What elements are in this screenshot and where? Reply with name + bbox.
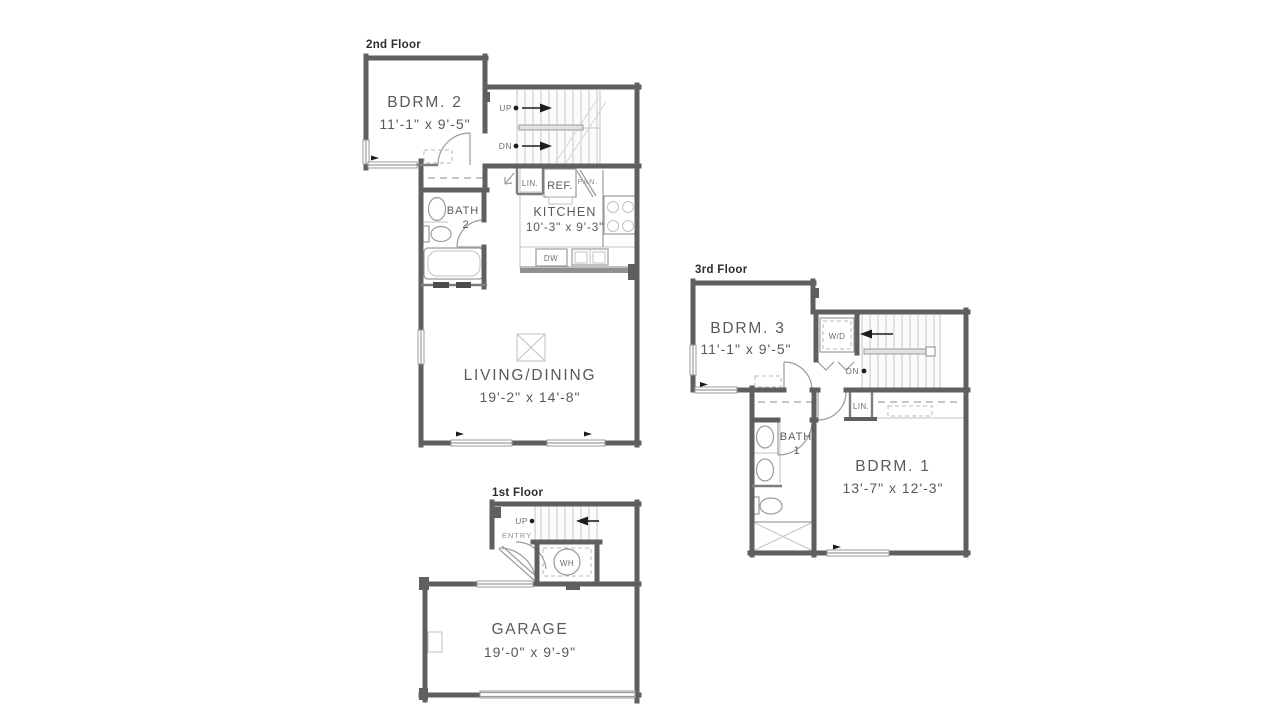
- pantry-label: PAN.: [578, 177, 599, 186]
- bath1-sink: [757, 459, 774, 481]
- room-bath1-number: 1: [793, 445, 800, 457]
- linen-label: LIN.: [522, 179, 538, 188]
- wall-pier: [419, 688, 428, 700]
- room-kitchen-label: KITCHEN: [533, 205, 596, 219]
- room-garage-label: GARAGE: [491, 621, 568, 638]
- stair-handrail: [519, 125, 583, 130]
- stair-handrail: [864, 349, 928, 354]
- window-tick: [456, 432, 464, 437]
- room-bath2-number: 2: [462, 219, 469, 231]
- bath2-door: [457, 220, 484, 247]
- wall-pier: [494, 507, 501, 518]
- kitchen-half-wall: [520, 268, 639, 273]
- dn-dot: [862, 369, 867, 374]
- floor-label-1st: 1st Floor: [492, 487, 543, 499]
- dresser-dashed: [755, 376, 781, 387]
- windows: [477, 581, 635, 698]
- window-tick: [833, 545, 841, 550]
- room-kitchen-dims: 10'-3" x 9'-3": [526, 220, 604, 234]
- refrigerator-handle: [549, 197, 572, 204]
- window-tick: [584, 432, 592, 437]
- dw-label: DW: [544, 254, 558, 263]
- entry-diagonal-wall: [499, 546, 538, 581]
- room-bdrm3-label: BDRM. 3: [710, 320, 785, 337]
- entry-door-arc: [499, 548, 536, 581]
- floor-plan-page: 2nd Floor BDRM. 2 11'-1" x 9'-5" UP DN L…: [0, 0, 1280, 724]
- room-bath2-label: BATH: [447, 205, 480, 217]
- room-living-dims: 19'-2" x 14'-8": [479, 389, 580, 405]
- floor-label-2nd: 2nd Floor: [366, 39, 421, 51]
- wall-pier: [483, 92, 490, 102]
- handrail-post: [926, 347, 935, 356]
- stairs-dn-label: DN: [846, 366, 859, 376]
- room-bath1-label: BATH: [780, 431, 813, 443]
- toilet-bowl: [760, 498, 782, 514]
- stairs-up-label: UP: [515, 516, 528, 526]
- room-bdrm1-dims: 13'-7" x 12'-3": [842, 480, 943, 496]
- wd-label: W/D: [829, 332, 846, 341]
- linen-door-arrow: [505, 173, 514, 184]
- up-dot: [530, 519, 535, 524]
- room-bdrm1-label: BDRM. 1: [855, 458, 930, 475]
- floor-label-3rd: 3rd Floor: [695, 264, 748, 276]
- room-bdrm2-label: BDRM. 2: [387, 94, 462, 111]
- stairs-dn-label: DN: [499, 141, 512, 151]
- toilet-bowl: [431, 227, 451, 242]
- second-floor-plan: 2nd Floor BDRM. 2 11'-1" x 9'-5" UP DN L…: [363, 39, 639, 446]
- wall-pier: [419, 577, 429, 590]
- wh-label: WH: [560, 559, 574, 568]
- bath2-sink: [429, 198, 446, 221]
- closet-shelf-dashed: [888, 406, 932, 416]
- dn-dot: [514, 144, 519, 149]
- stairs-up-label: UP: [499, 103, 512, 113]
- bdrm3-door: [784, 362, 812, 390]
- third-floor-plan: 3rd Floor BDRM. 3 11'-1" x 9'-5" W/D DN …: [690, 264, 968, 556]
- bdrm2-door: [438, 133, 470, 165]
- wall-stub: [566, 584, 580, 590]
- bathtub: [424, 248, 483, 279]
- floor-plan-canvas: 2nd Floor BDRM. 2 11'-1" x 9'-5" UP DN L…: [0, 0, 1280, 724]
- room-garage-dims: 19'-0" x 9'-9": [484, 644, 576, 660]
- ref-label: REF.: [547, 180, 573, 192]
- bdrm1-door: [818, 392, 846, 420]
- bath1-sink: [757, 426, 774, 448]
- garage-panel: [428, 632, 442, 652]
- up-dot: [514, 106, 519, 111]
- toilet-tank: [423, 226, 429, 242]
- ceiling-fan-icon: [517, 334, 545, 361]
- entry-label: ENTRY: [502, 531, 532, 540]
- room-bdrm2-dims: 11'-1" x 9'-5": [379, 116, 470, 132]
- stairs-area: [535, 506, 600, 542]
- stove: [604, 196, 637, 234]
- room-living-label: LIVING/DINING: [464, 367, 597, 384]
- first-floor-plan: 1st Floor UP ENTRY WH GARAGE 19'-0" x 9'…: [419, 487, 639, 701]
- wall-pier: [811, 288, 819, 298]
- room-bdrm3-dims: 11'-1" x 9'-5": [700, 341, 791, 357]
- window-tick: [700, 382, 708, 387]
- window-tick: [371, 156, 379, 161]
- linen-label: LIN.: [853, 402, 869, 411]
